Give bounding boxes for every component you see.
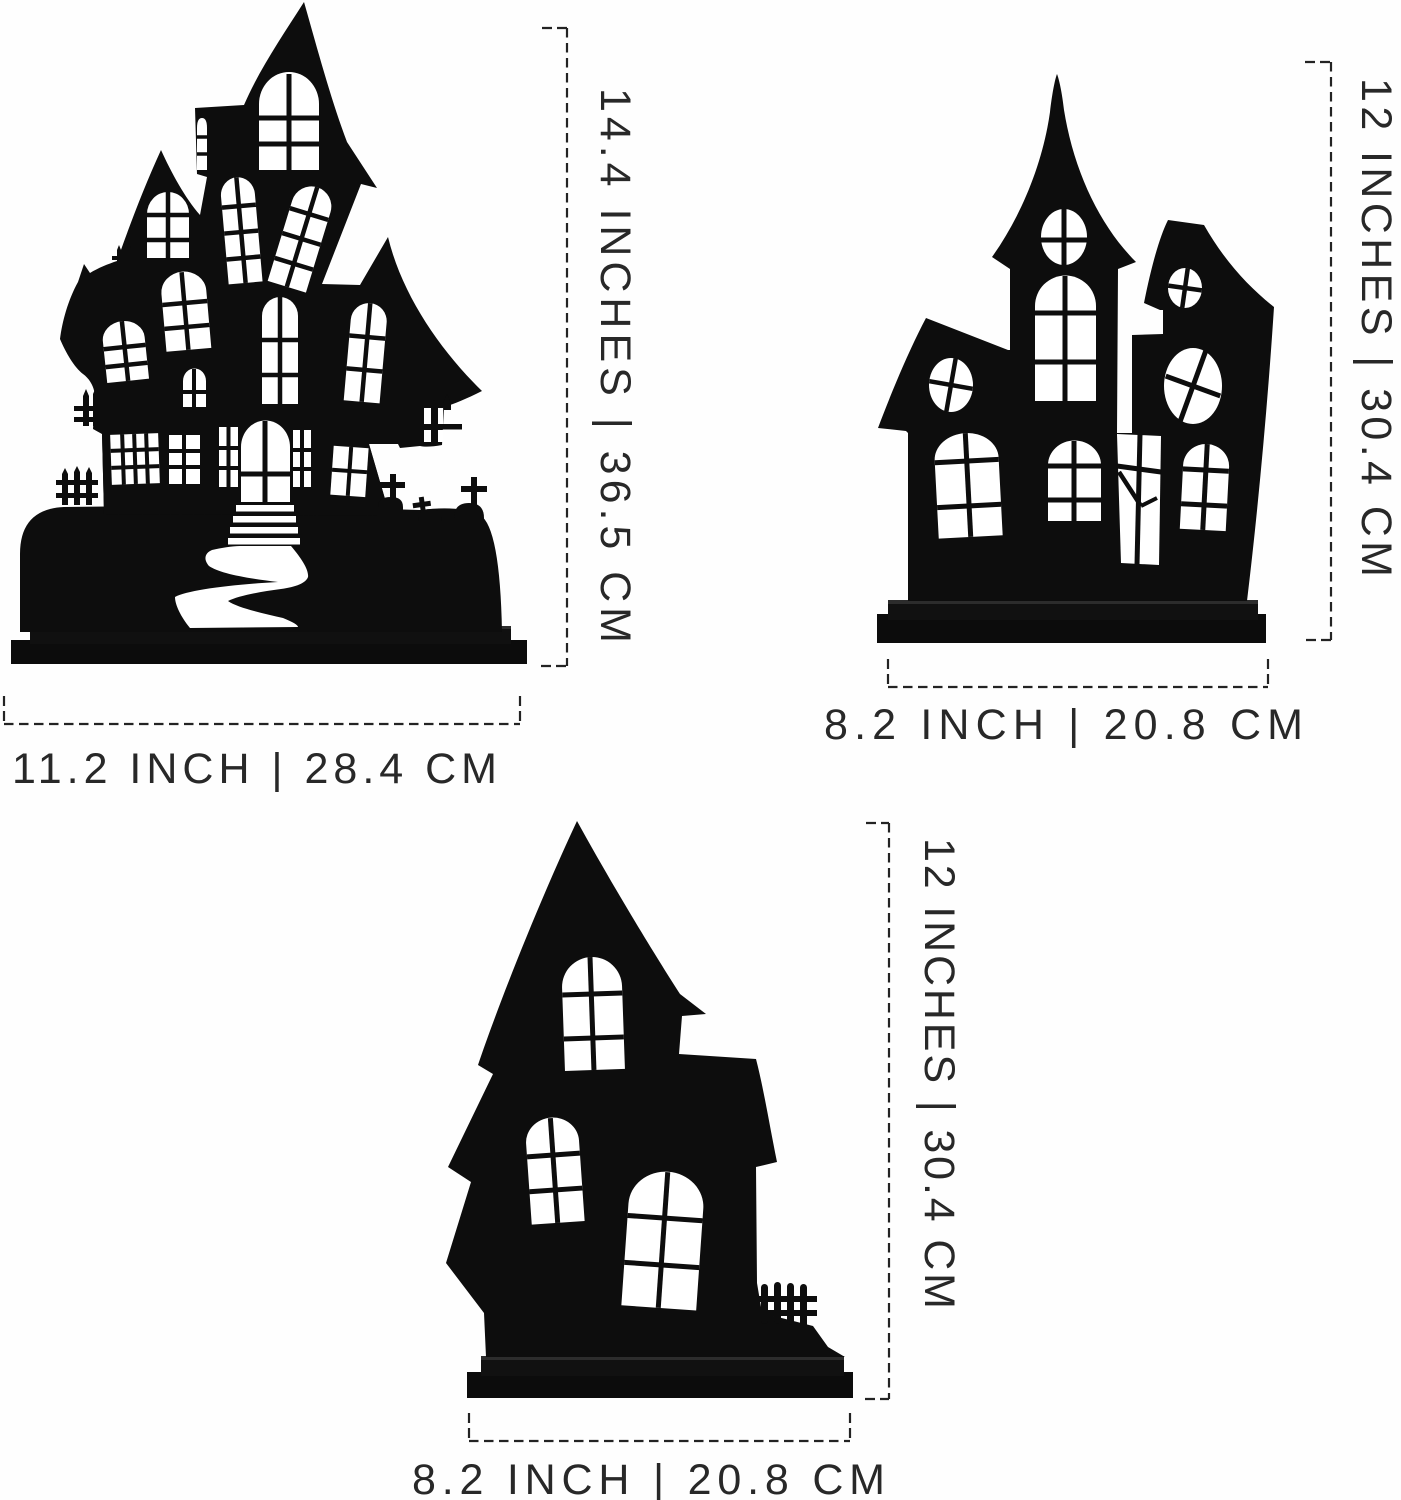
svg-text:11.2 INCH | 28.4 CM: 11.2 INCH | 28.4 CM: [12, 745, 500, 793]
svg-text:12 INCHES | 30.4 CM: 12 INCHES | 30.4 CM: [1352, 78, 1400, 580]
svg-text:14.4 INCHES | 36.5 CM: 14.4 INCHES | 36.5 CM: [591, 88, 639, 646]
svg-text:8.2 INCH | 20.8 CM: 8.2 INCH | 20.8 CM: [824, 701, 1306, 749]
svg-text:8.2 INCH | 20.8 CM: 8.2 INCH | 20.8 CM: [412, 1456, 888, 1500]
svg-text:12 INCHES | 30.4 CM: 12 INCHES | 30.4 CM: [915, 838, 963, 1312]
